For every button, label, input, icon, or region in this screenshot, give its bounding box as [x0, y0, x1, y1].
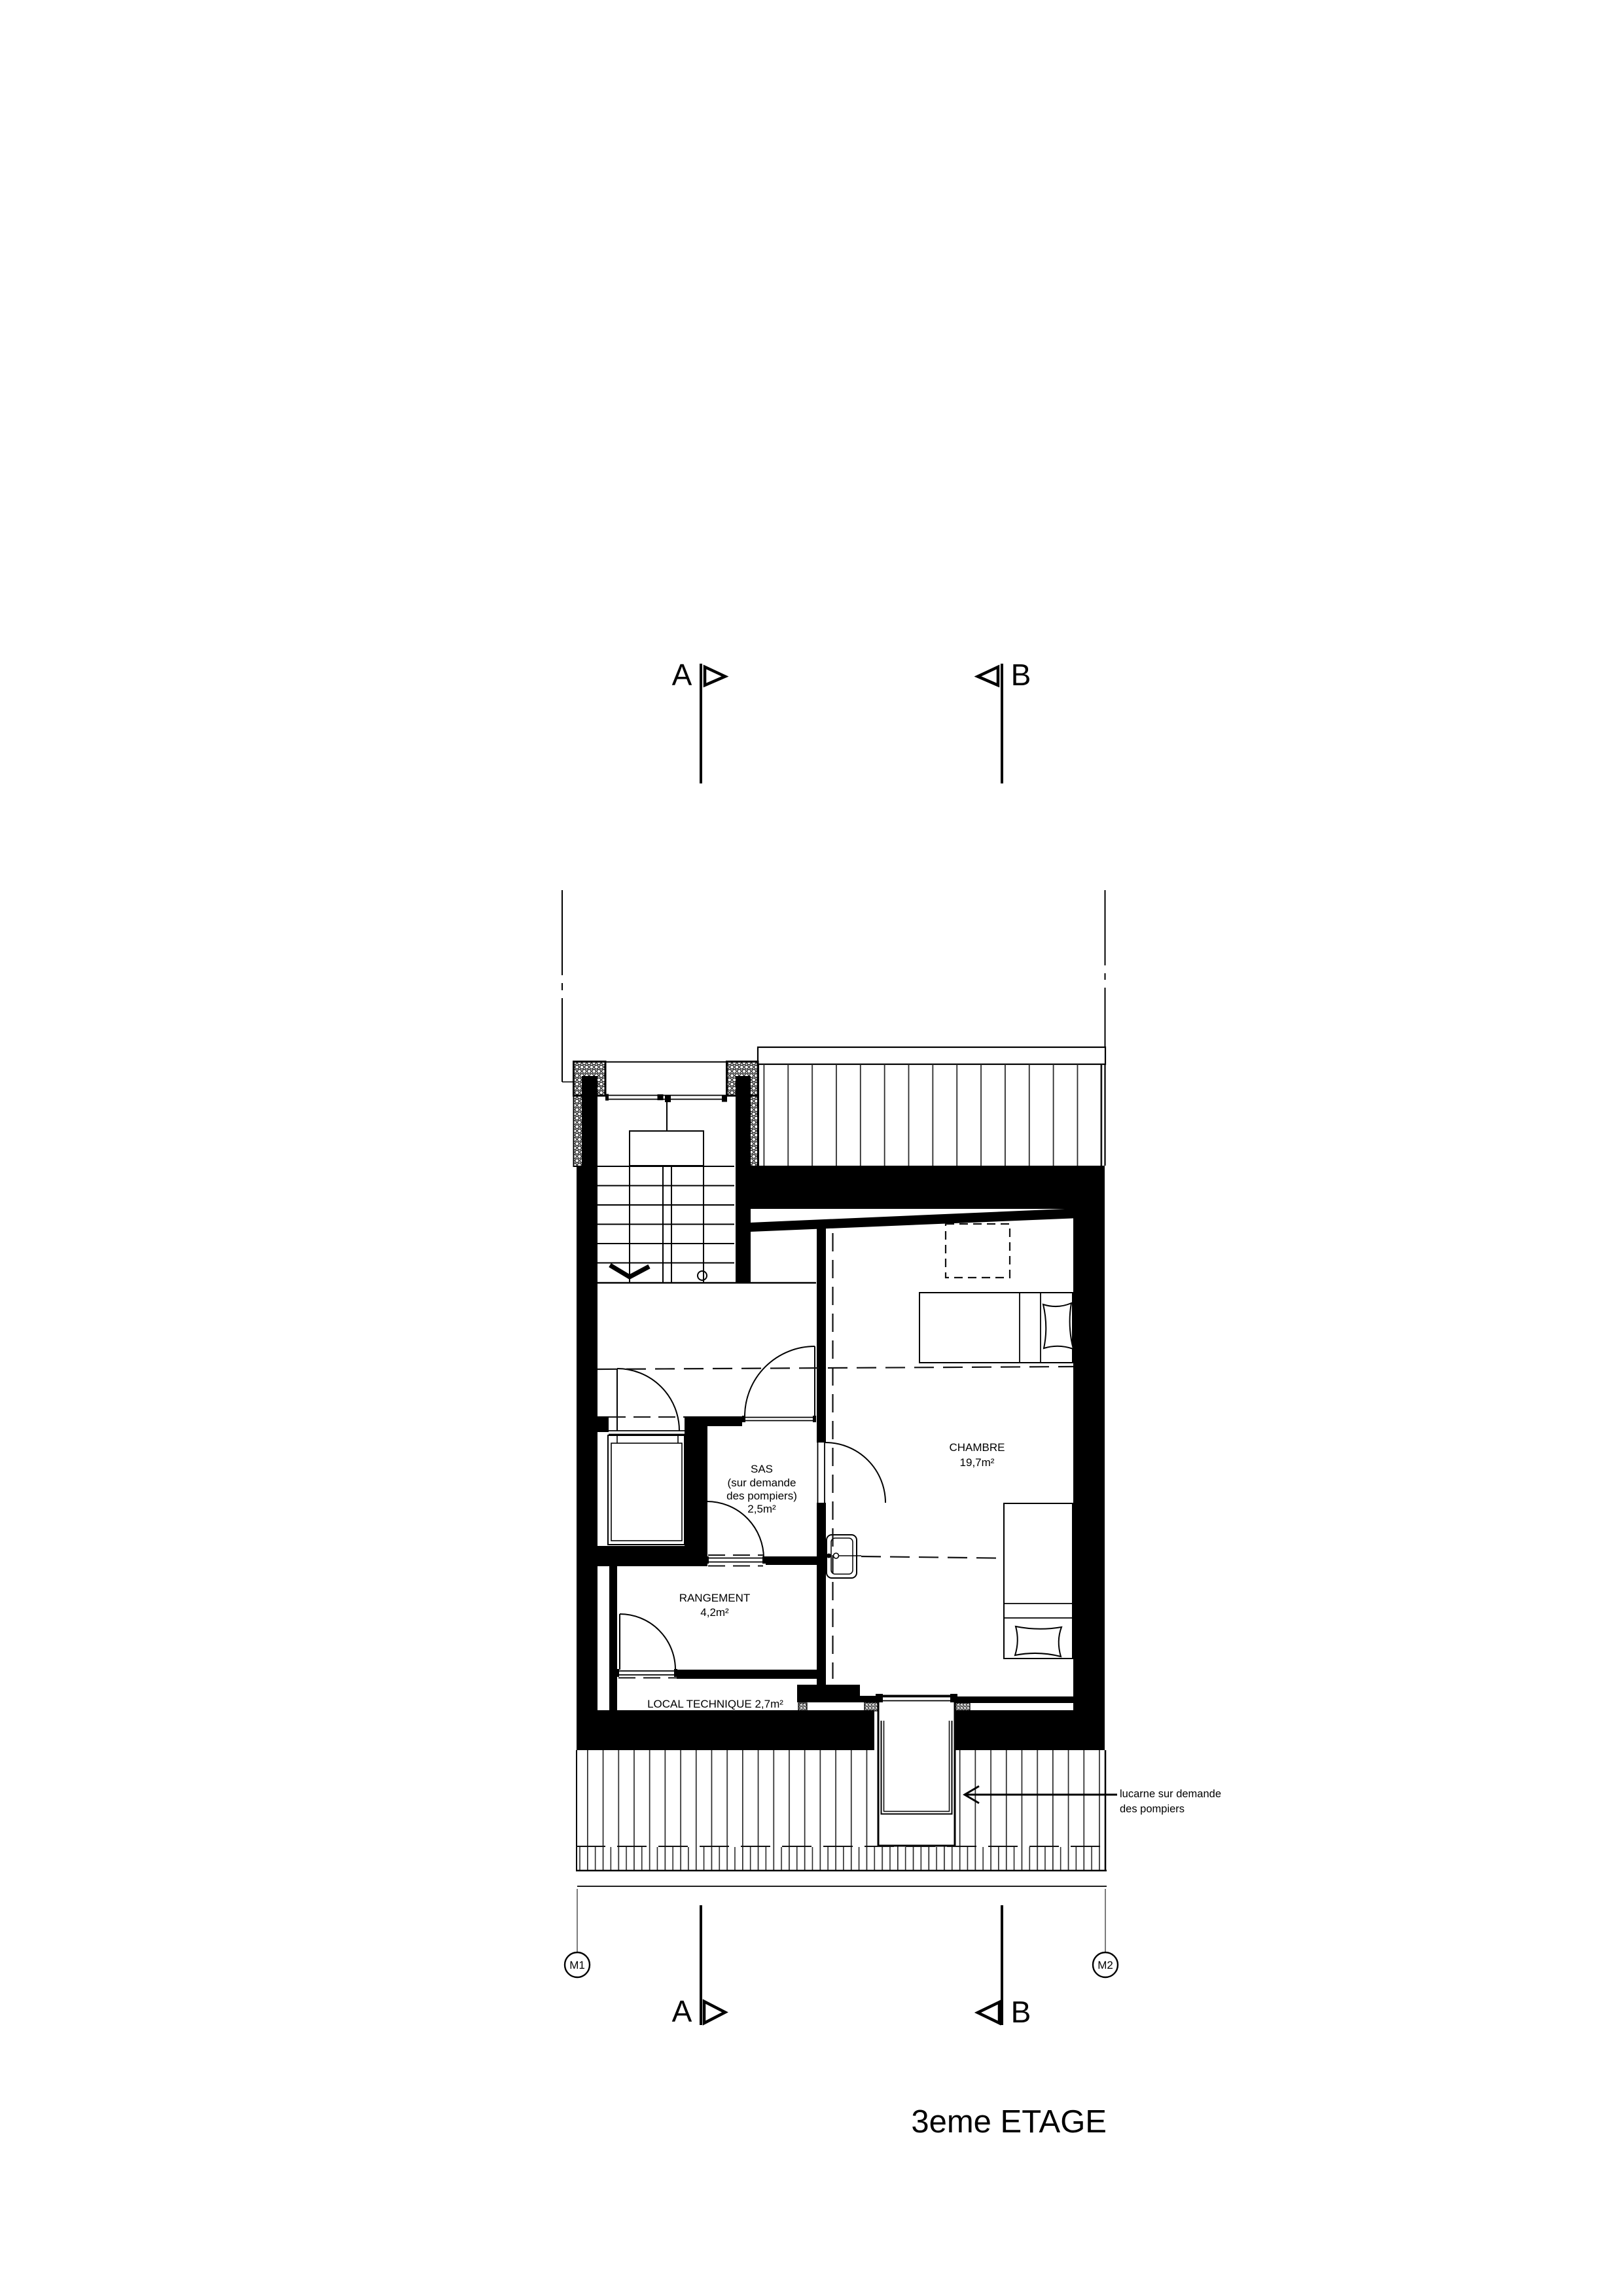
- svg-text:SAS: SAS: [751, 1463, 773, 1475]
- svg-text:(sur demande: (sur demande: [728, 1477, 796, 1489]
- svg-text:CHAMBRE: CHAMBRE: [949, 1441, 1005, 1454]
- svg-text:19,7m²: 19,7m²: [960, 1456, 995, 1469]
- svg-text:M2: M2: [1097, 1959, 1113, 1971]
- svg-text:M1: M1: [569, 1959, 585, 1971]
- svg-text:4,2m²: 4,2m²: [700, 1606, 729, 1619]
- svg-text:2,5m²: 2,5m²: [747, 1503, 776, 1515]
- svg-text:A: A: [672, 658, 692, 692]
- svg-text:3eme ETAGE: 3eme ETAGE: [911, 2104, 1107, 2140]
- svg-text:LOCAL TECHNIQUE 2,7m²: LOCAL TECHNIQUE 2,7m²: [647, 1698, 783, 1710]
- svg-text:B: B: [1011, 1995, 1031, 2029]
- svg-text:des pompiers): des pompiers): [726, 1490, 797, 1502]
- svg-text:B: B: [1011, 658, 1031, 692]
- svg-text:A: A: [672, 1994, 692, 2028]
- svg-text:lucarne sur demande: lucarne sur demande: [1120, 1788, 1221, 1800]
- svg-text:RANGEMENT: RANGEMENT: [679, 1592, 751, 1604]
- svg-text:des pompiers: des pompiers: [1120, 1803, 1185, 1815]
